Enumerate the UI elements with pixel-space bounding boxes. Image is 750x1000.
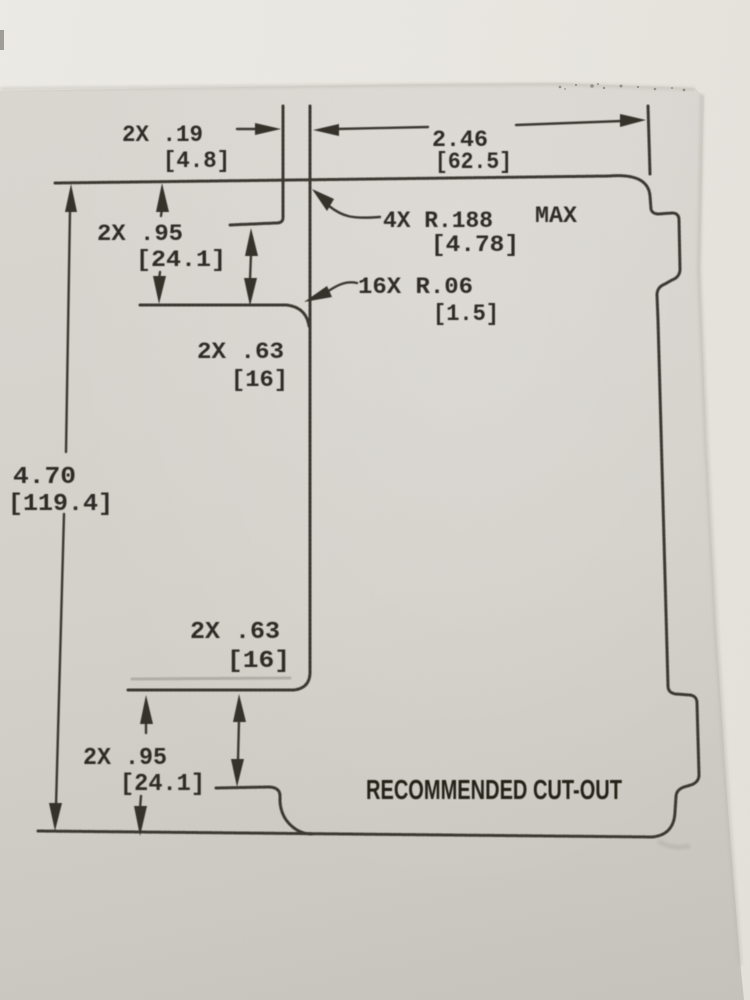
photo-grain-overlay bbox=[0, 84, 750, 1000]
photo-left-edge-artifact bbox=[0, 30, 4, 50]
cutout-drawing: 2X .19 [4.8] 2.46 [62.5] 4X R.188 MAX [4… bbox=[0, 0, 750, 1000]
photo-of-drawing: 2X .19 [4.8] 2.46 [62.5] 4X R.188 MAX [4… bbox=[0, 0, 750, 1000]
